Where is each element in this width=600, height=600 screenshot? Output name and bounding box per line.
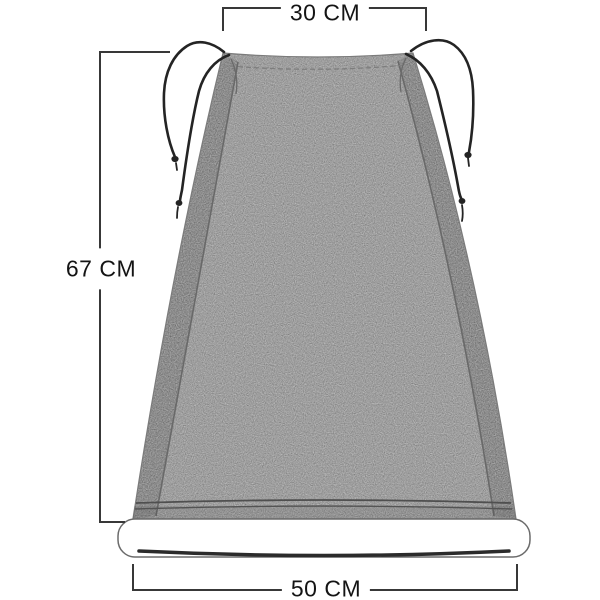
- drawstring-left-outer-tail: [176, 163, 177, 170]
- dimension-top-right-tick: [425, 7, 427, 31]
- dimension-top-width-label: 30 CM: [281, 0, 369, 27]
- bottom-hem-shadow: [132, 506, 516, 519]
- knot-left-inner: [176, 200, 183, 206]
- dimension-height-top-tick: [99, 51, 170, 53]
- dimension-bottom-right-tick: [516, 564, 518, 591]
- knot-right-outer: [464, 152, 471, 158]
- knot-right-inner: [459, 198, 466, 204]
- dimension-top-left-tick: [222, 7, 224, 31]
- dimension-height-label: 67 CM: [59, 248, 143, 289]
- product-dimension-diagram: 30 CM 67 CM 50 CM: [0, 0, 600, 600]
- dimension-bottom-width-label: 50 CM: [282, 575, 370, 600]
- dimension-bottom-left-tick: [132, 564, 134, 591]
- knot-left-outer: [171, 156, 178, 162]
- product-illustration: [0, 0, 600, 600]
- drawstring-right-outer-tail: [468, 158, 469, 166]
- drawstring-left-inner-tail: [177, 207, 178, 218]
- dimension-height-bottom-tick: [99, 521, 125, 523]
- drawstring-right-inner-tail: [462, 205, 463, 221]
